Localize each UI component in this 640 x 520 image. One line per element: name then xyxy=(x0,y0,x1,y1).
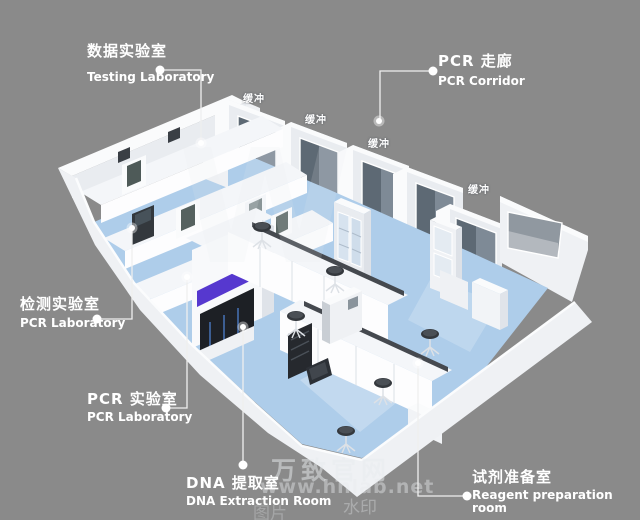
callout-line-detection-lab xyxy=(93,223,138,324)
callout-lines-overlay xyxy=(0,0,640,520)
callout-line-testing-lab xyxy=(156,66,207,149)
callout-line-dna-extraction xyxy=(238,322,249,470)
callout-line-pcr-corridor xyxy=(374,67,438,127)
callout-line-reagent-prep xyxy=(413,358,472,501)
lab-floorplan-scene: W 万致官网 www.hnlab.net 水印 图片 缓冲 缓冲 缓冲 缓冲 数… xyxy=(0,0,640,520)
callout-line-pcr-lab xyxy=(162,272,193,413)
